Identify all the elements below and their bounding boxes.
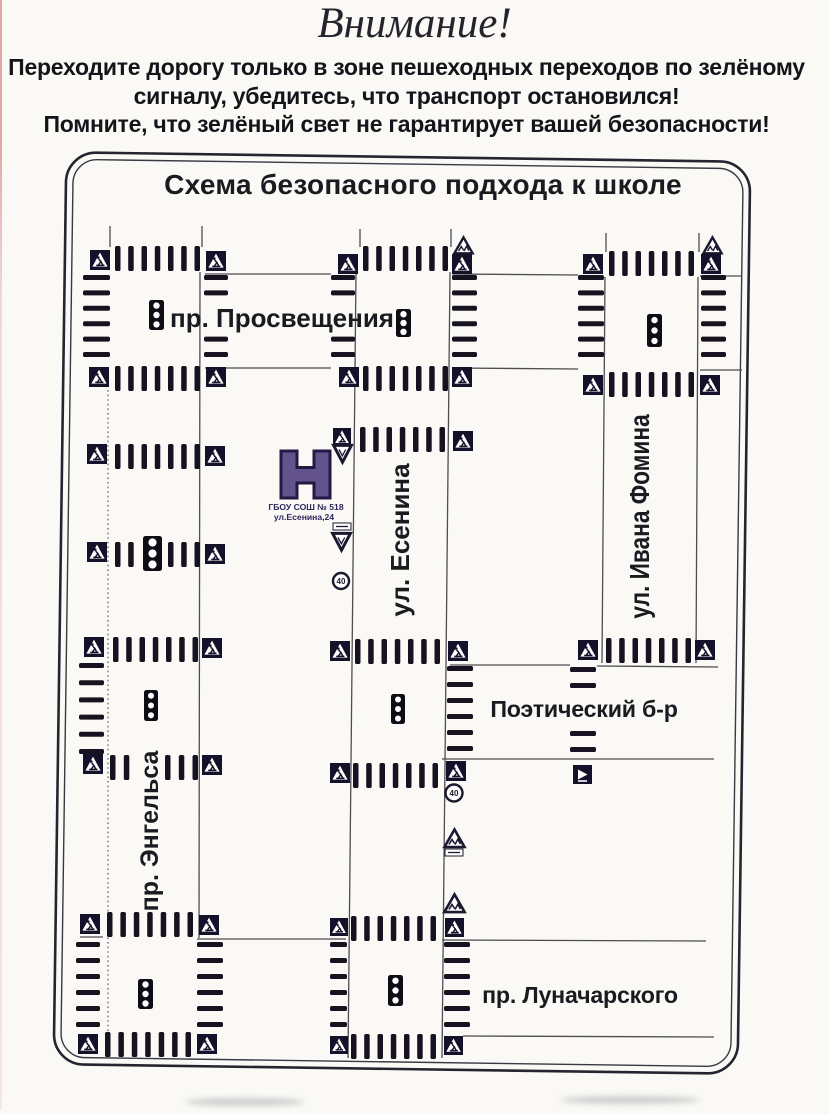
svg-text:ГБОУ СОШ № 518: ГБОУ СОШ № 518	[268, 502, 343, 512]
svg-text:Схема безопасного подхода к: Схема безопасного подхода к школе	[164, 169, 682, 200]
svg-text:ул. Ивана Фомина: ул. Ивана Фомина	[625, 414, 656, 619]
svg-text:пр. Энгельса: пр. Энгельса	[136, 749, 164, 911]
svg-text:40: 40	[337, 577, 346, 586]
svg-text:40: 40	[450, 789, 459, 798]
svg-text:ул. Есенина: ул. Есенина	[385, 463, 415, 617]
svg-text:пр. Просвещения: пр. Просвещения	[170, 303, 394, 333]
svg-text:пр. Луначарского: пр. Луначарского	[482, 982, 678, 1008]
svg-text:Поэтический б-р: Поэтический б-р	[490, 696, 677, 722]
svg-text:ул.Есенина,24: ул.Есенина,24	[274, 512, 334, 522]
